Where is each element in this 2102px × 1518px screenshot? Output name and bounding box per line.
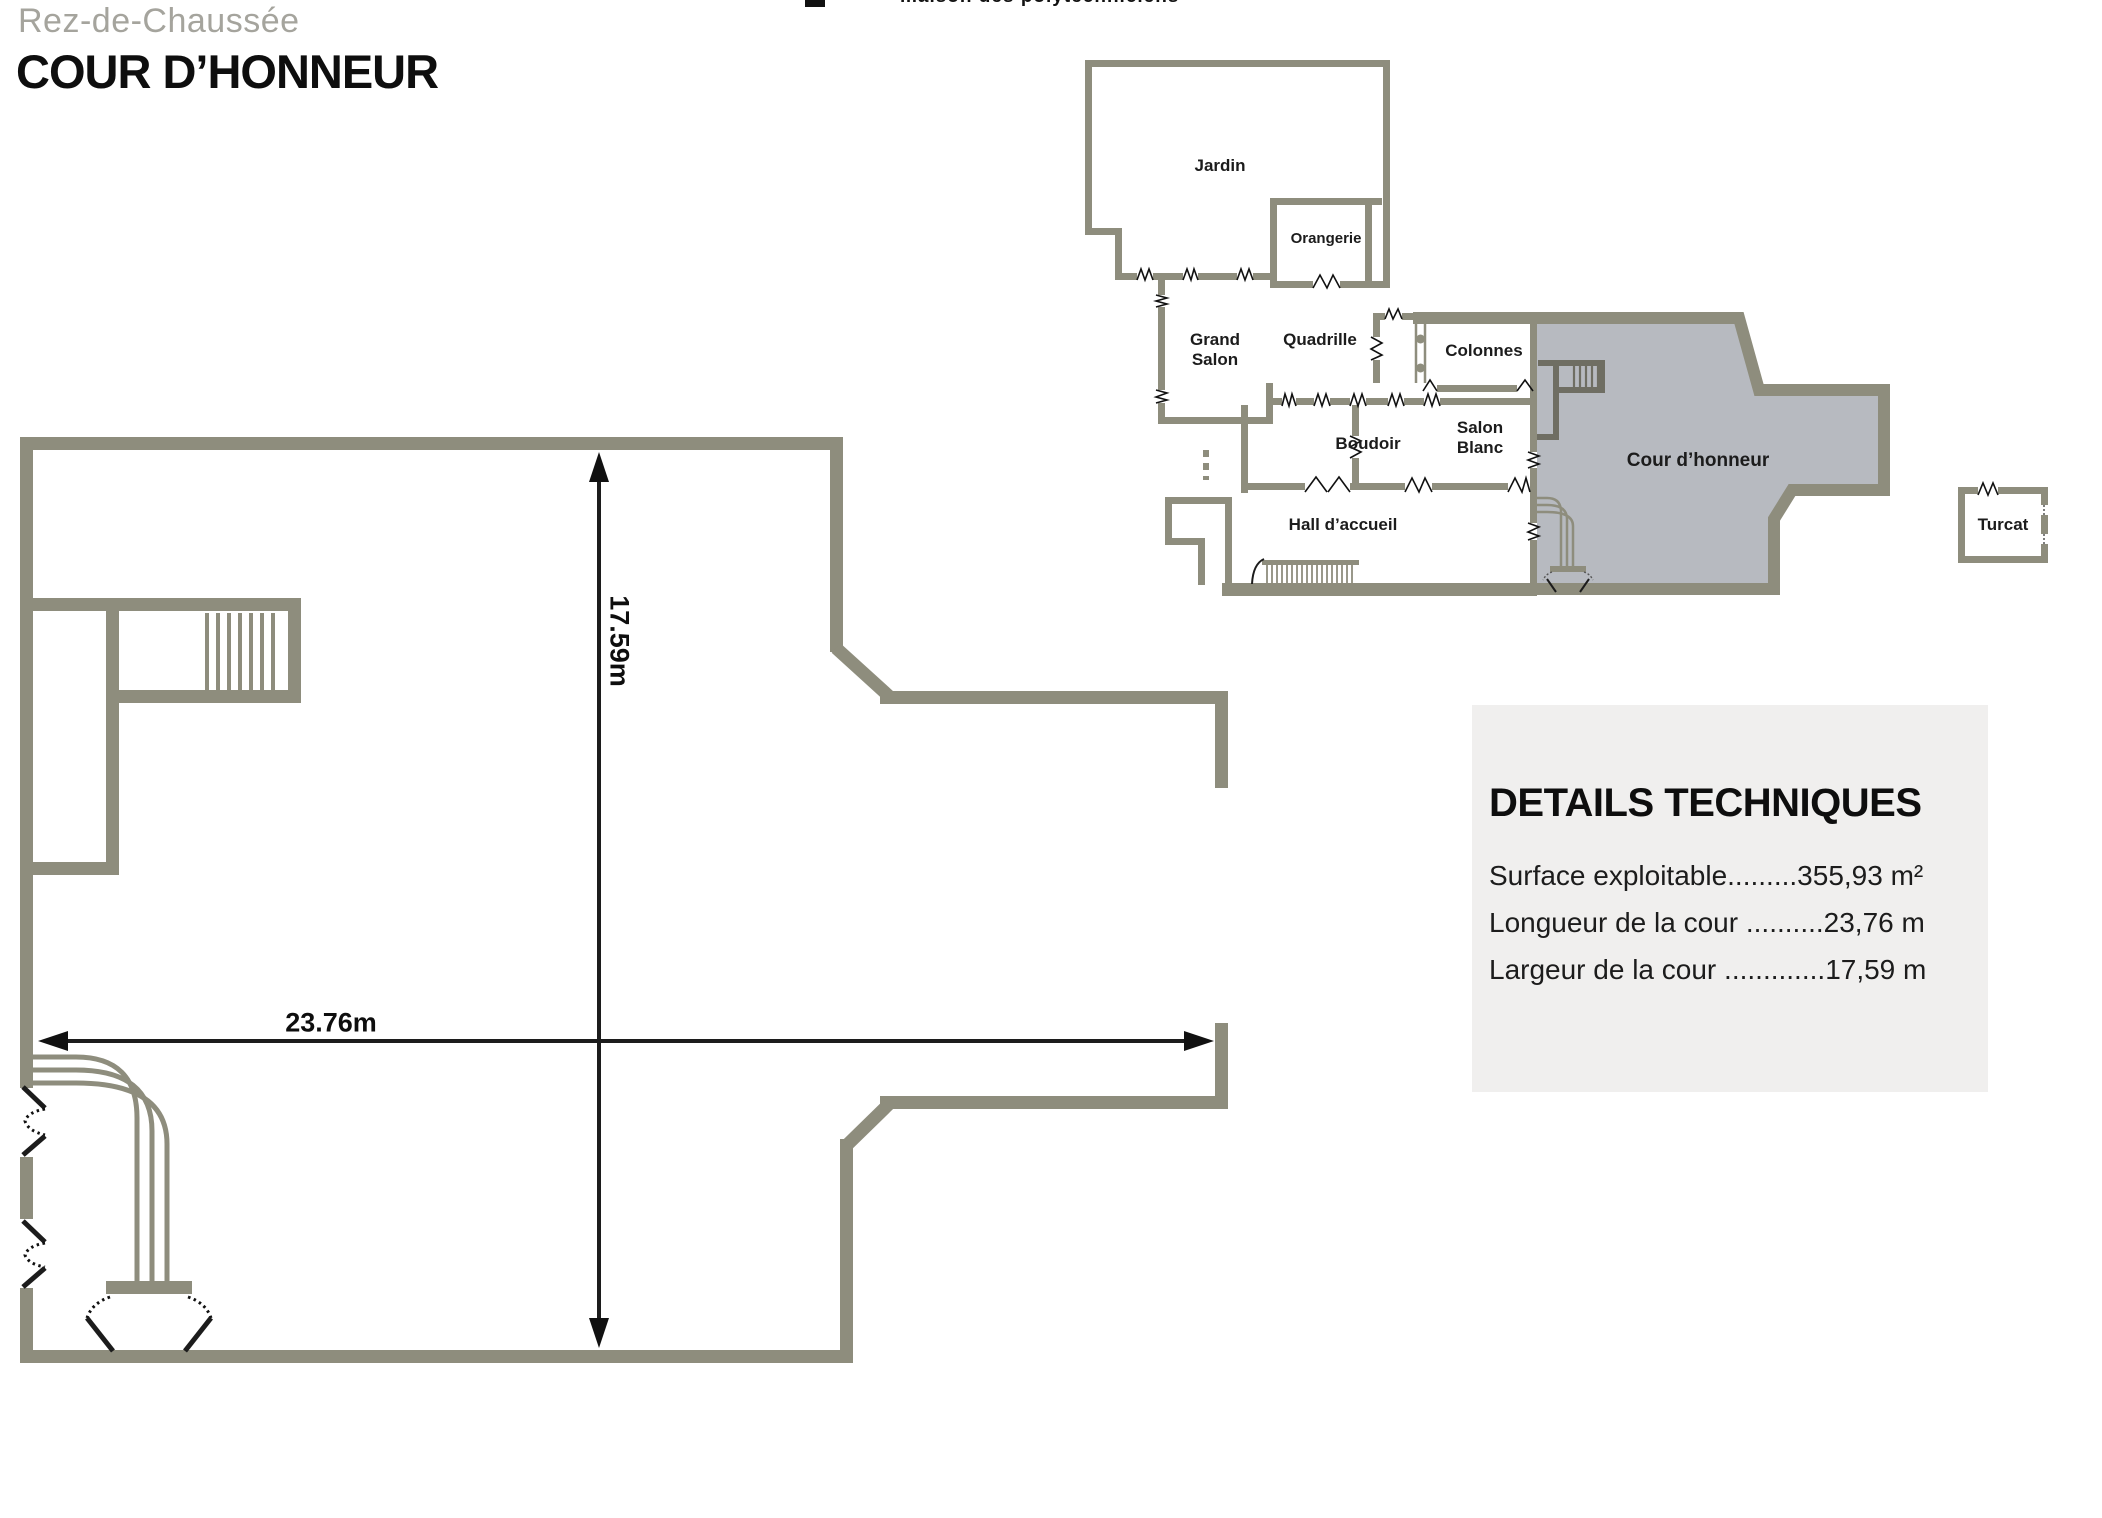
room-label-quadrille: Quadrille [1283, 330, 1357, 350]
details-panel-title: DETAILS TECHNIQUES [1489, 781, 1974, 826]
driveway-curves [33, 1057, 167, 1283]
main-plan-stair-treads [205, 613, 275, 690]
room-label-orangerie: Orangerie [1291, 230, 1362, 248]
spec-row-largeur: Largeur de la cour .............17,59 m [1489, 954, 1974, 986]
spec-label: Largeur de la cour [1489, 954, 1724, 985]
details-panel: DETAILS TECHNIQUES Surface exploitable..… [1472, 705, 1988, 1092]
main-floor-plan [20, 437, 1228, 1363]
dimension-arrows [38, 452, 1214, 1348]
entrance-gate-symbol [87, 1281, 211, 1351]
spec-row-longueur: Longueur de la cour ..........23,76 m [1489, 907, 1974, 939]
room-label-hall-accueil: Hall d’accueil [1289, 515, 1398, 535]
spec-value: 355,93 m² [1797, 860, 1923, 891]
spec-leader-dots: .......... [1746, 907, 1824, 938]
spec-label: Surface exploitable [1489, 860, 1727, 891]
room-label-colonnes: Colonnes [1445, 341, 1522, 361]
minimap-column-symbol [1416, 320, 1425, 383]
room-label-turcat: Turcat [1978, 515, 2029, 535]
spec-label: Longueur de la cour [1489, 907, 1746, 938]
overview-minimap [1085, 60, 2048, 596]
height-dimension-label: 17.59m [604, 595, 635, 687]
width-dimension-label: 23.76m [285, 1008, 377, 1039]
spec-leader-dots: ............. [1724, 954, 1825, 985]
height-dimension-arrow [589, 452, 609, 1348]
spec-value: 23,76 m [1824, 907, 1925, 938]
floor-plan-page: maison des polytechniciens Rez-de-Chauss… [0, 0, 2102, 1518]
room-label-boudoir: Boudoir [1335, 434, 1400, 454]
room-label-jardin: Jardin [1194, 156, 1245, 176]
minimap-entrance-grille [1252, 559, 1359, 585]
room-label-grand-salon: Grand Salon [1190, 330, 1240, 370]
spec-row-surface: Surface exploitable.........355,93 m² [1489, 860, 1974, 892]
main-plan-walls [20, 437, 1228, 1363]
spec-value: 17,59 m [1825, 954, 1926, 985]
room-label-cour-honneur: Cour d’honneur [1627, 450, 1769, 472]
spec-leader-dots: ......... [1727, 860, 1797, 891]
room-label-salon-blanc: Salon Blanc [1457, 418, 1503, 458]
width-dimension-arrow [38, 1031, 1214, 1051]
